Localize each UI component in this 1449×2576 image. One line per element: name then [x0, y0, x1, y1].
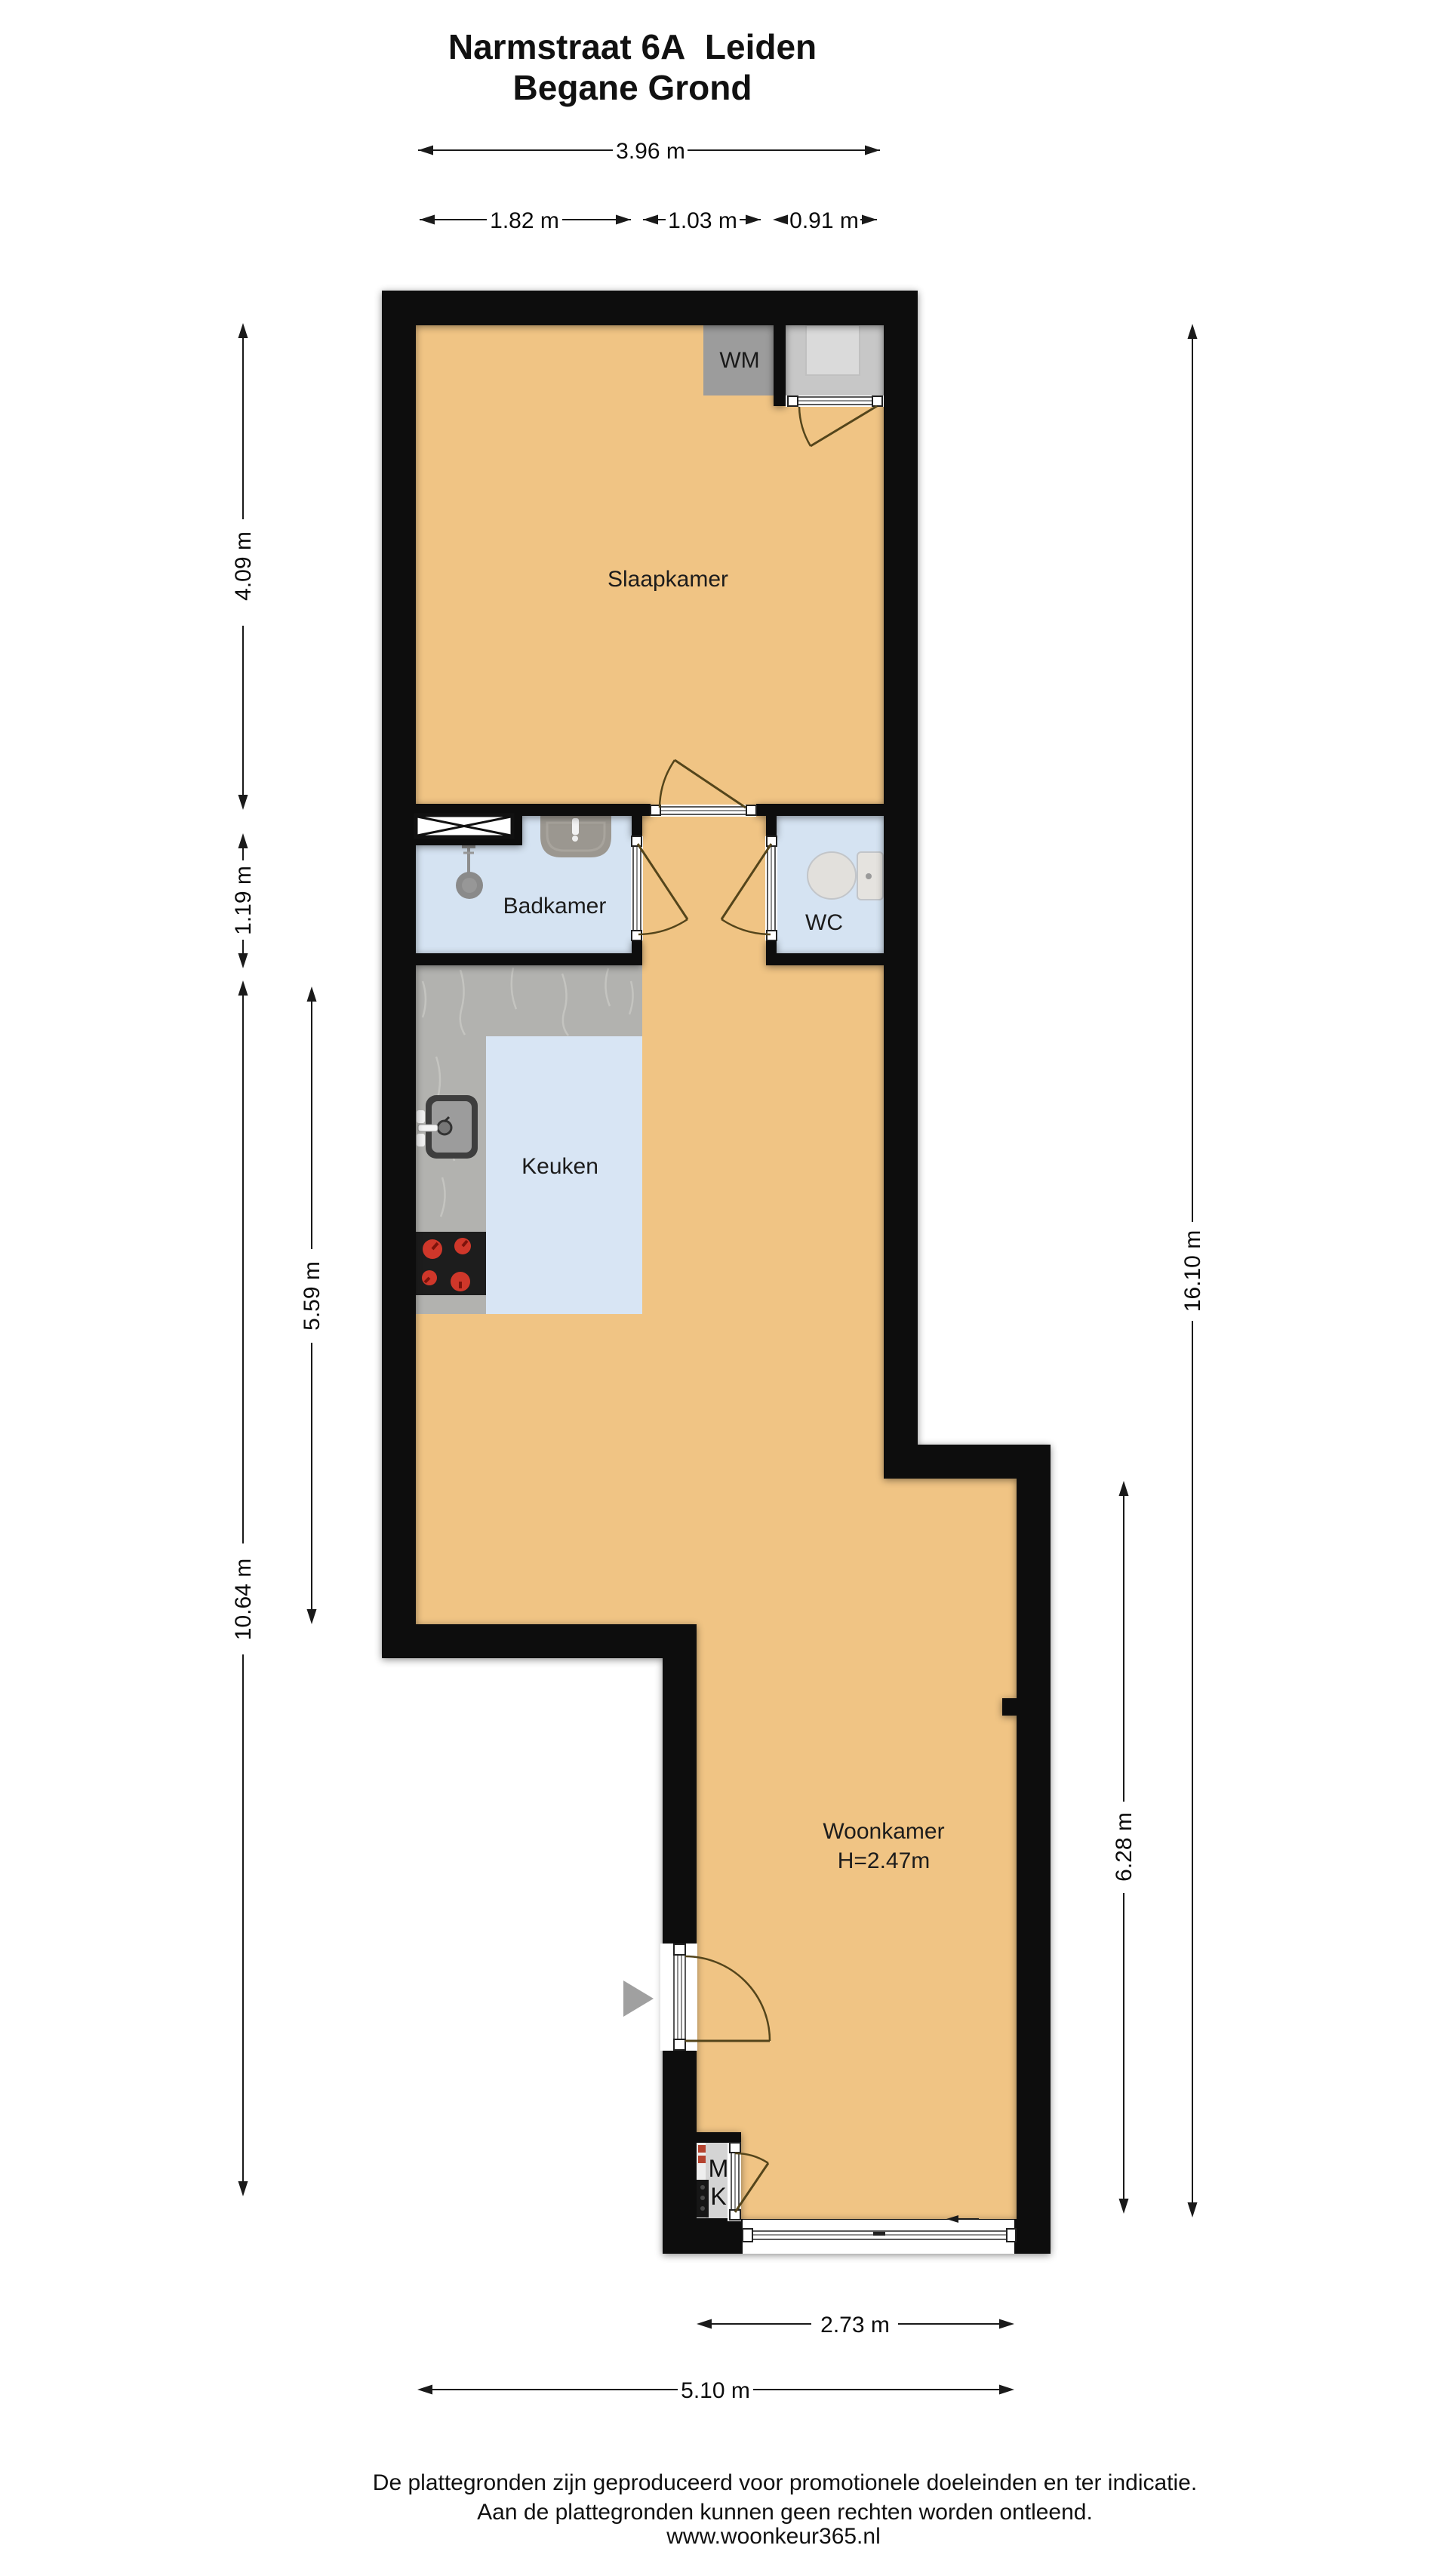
svg-text:K: K	[710, 2183, 726, 2210]
svg-text:Keuken: Keuken	[521, 1154, 598, 1179]
svg-text:6.28 m: 6.28 m	[1112, 1812, 1137, 1882]
svg-text:WM: WM	[719, 348, 759, 373]
svg-text:De plattegronden zijn geproduc: De plattegronden zijn geproduceerd voor …	[373, 2470, 1197, 2495]
svg-text:H=2.47m: H=2.47m	[838, 1848, 931, 1873]
svg-text:5.10 m: 5.10 m	[681, 2378, 750, 2403]
svg-text:Slaapkamer: Slaapkamer	[608, 567, 728, 592]
svg-text:1.82 m: 1.82 m	[490, 208, 559, 233]
svg-text:16.10 m: 16.10 m	[1180, 1230, 1205, 1312]
svg-text:1.19 m: 1.19 m	[231, 866, 256, 935]
svg-text:0.91 m: 0.91 m	[789, 208, 859, 233]
svg-text:10.64 m: 10.64 m	[231, 1559, 256, 1640]
svg-text:3.96 m: 3.96 m	[616, 139, 685, 164]
svg-text:Badkamer: Badkamer	[503, 894, 607, 919]
svg-text:Narmstraat 6A Leiden: Narmstraat 6A Leiden	[448, 27, 817, 66]
svg-text:1.03 m: 1.03 m	[668, 208, 737, 233]
svg-text:M: M	[709, 2155, 729, 2182]
svg-text:WC: WC	[805, 910, 843, 935]
svg-text:Begane Grond: Begane Grond	[513, 68, 752, 107]
svg-text:Woonkamer: Woonkamer	[823, 1819, 944, 1844]
svg-text:www.woonkeur365.nl: www.woonkeur365.nl	[666, 2524, 881, 2549]
svg-text:4.09 m: 4.09 m	[231, 531, 256, 601]
svg-text:2.73 m: 2.73 m	[820, 2313, 890, 2337]
svg-text:Aan de plattegronden kunnen ge: Aan de plattegronden kunnen geen rechten…	[477, 2500, 1093, 2525]
svg-text:5.59 m: 5.59 m	[300, 1261, 325, 1331]
